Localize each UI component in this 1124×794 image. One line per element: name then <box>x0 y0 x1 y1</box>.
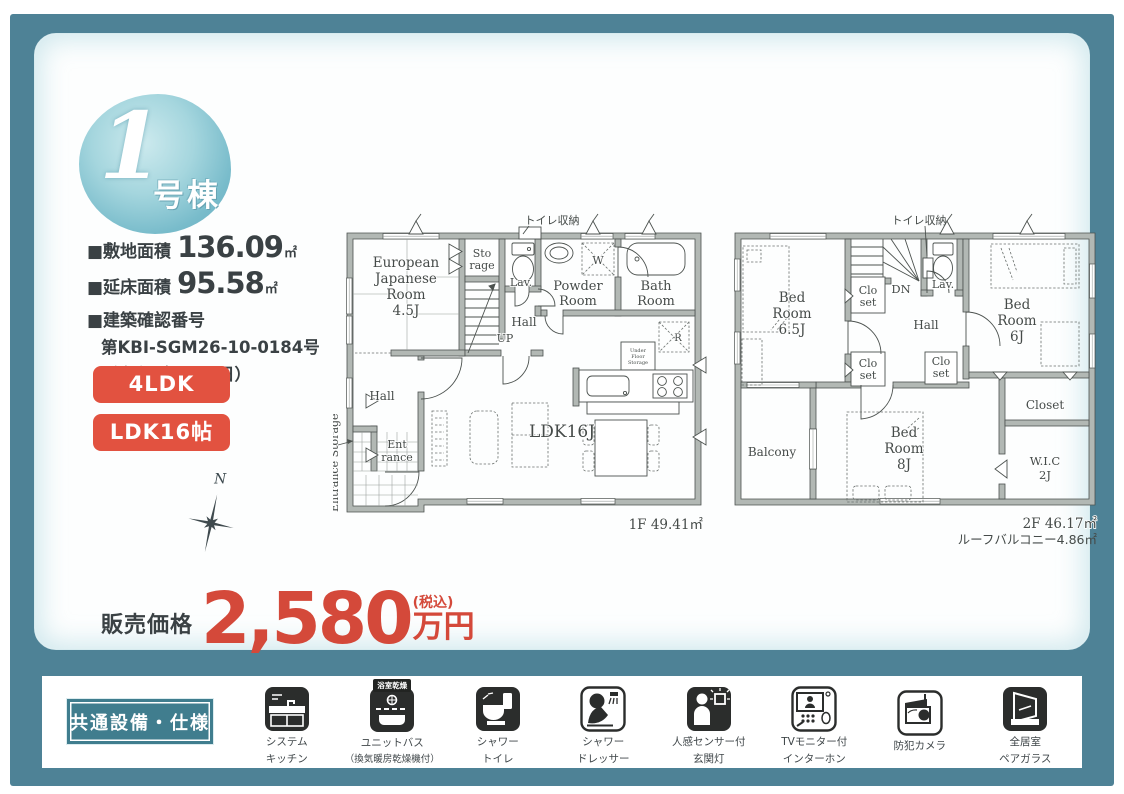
room-label-hall-2f: Hall <box>913 318 938 332</box>
footer-strip: 共通設備・仕様 システム キッチン 浴 <box>42 676 1082 768</box>
feature-unit-bath: 浴室乾燥 ユニットバス （換気暖房乾燥機付） <box>340 684 446 766</box>
room-label-hall-up: Hall <box>511 315 536 329</box>
feature-tv-intercom: TVモニター付 インターホン <box>762 684 868 766</box>
room-label-lav-1f: Lav. <box>510 276 532 289</box>
room-label-hall-1f: Hall <box>369 389 394 403</box>
property-info: ■敷地面積 136.09 ㎡ ■延床面積 95.58 ㎡ ■建築確認番号 第KB… <box>87 230 347 385</box>
entrance-tiles <box>353 432 418 506</box>
svg-text:Room: Room <box>772 306 811 322</box>
price-row: 販売価格 2,580 (税込) 万円 <box>101 586 475 651</box>
compass-rose: N <box>167 466 255 566</box>
building-number-suffix: 号棟 <box>153 170 221 215</box>
site-area-unit: ㎡ <box>284 242 297 261</box>
feature-list: システム キッチン 浴室乾燥 ユニットバス （換気暖房乾燥機付） <box>234 684 1078 766</box>
room-label-closet: Closet <box>1026 398 1065 412</box>
area-label-2f: 2F 46.17㎡ <box>1023 516 1098 532</box>
price-label: 販売価格 <box>101 607 193 651</box>
roof-balcony-label: ルーフバルコニー4.86㎡ <box>958 532 1098 547</box>
toilet-storage-note-1f: トイレ収納 <box>525 214 580 227</box>
feature-pair-glass: 全居室 ペアガラス <box>973 684 1079 766</box>
price-unit-block: (税込) 万円 <box>413 592 475 651</box>
entrance-storage-label: Entrance Storage <box>333 413 341 512</box>
kitchen-counter <box>579 370 693 414</box>
layout-tag: 4LDK <box>93 366 230 403</box>
price-amount: 2,580 <box>201 586 411 651</box>
shower-toilet-icon <box>475 686 521 732</box>
svg-text:Room: Room <box>386 287 425 303</box>
room-label-bed8: Bed <box>891 425 918 441</box>
floorplan-2f: トイレ収納 Bed Room 6.5J Clo set Clo set Clo … <box>723 210 1113 558</box>
svg-text:Room: Room <box>559 294 597 309</box>
svg-text:4.5J: 4.5J <box>393 303 420 319</box>
building-number-badge: 1 号棟 <box>79 94 231 234</box>
svg-text:Room: Room <box>997 313 1036 329</box>
room-label-entrance: Ent <box>387 438 407 451</box>
room-label-wic: W.I.C <box>1030 454 1061 468</box>
svg-text:Storage: Storage <box>628 360 648 366</box>
compass-north-label: N <box>213 472 227 488</box>
floorplan-1f: トイレ収納 European Japanese Room 4.5J Sto ra… <box>333 210 725 558</box>
svg-text:set: set <box>933 367 950 380</box>
compass-icon: N <box>167 466 255 562</box>
svg-text:Room: Room <box>884 441 923 457</box>
floor-area-unit: ㎡ <box>265 278 278 297</box>
stairs-up-label: UP <box>497 332 514 345</box>
pair-glass-icon <box>1002 686 1048 732</box>
room-label-bed6: Bed <box>1004 297 1031 313</box>
unit-bath-icon <box>369 687 415 733</box>
ldk-size-tag: LDK16帖 <box>93 414 230 451</box>
floor-area-label: ■延床面積 <box>87 273 171 298</box>
system-kitchen-icon <box>264 686 310 732</box>
shower-dresser-icon <box>580 686 626 732</box>
toilet-2f <box>933 243 953 280</box>
stairs-down-label: DN <box>891 282 910 296</box>
flyer-page: 1 号棟 ■敷地面積 136.09 ㎡ ■延床面積 95.58 ㎡ ■建築確認番… <box>0 0 1124 794</box>
roof-vent-icons-2f <box>940 214 1034 234</box>
floor-area-value: 95.58 <box>177 266 264 300</box>
svg-text:2J: 2J <box>1039 468 1051 482</box>
svg-text:rage: rage <box>469 259 494 272</box>
room-label-ejr: European <box>373 255 440 271</box>
svg-text:8J: 8J <box>897 457 911 473</box>
toilet-storage-note-2f: トイレ収納 <box>892 214 947 227</box>
svg-text:rance: rance <box>381 451 413 464</box>
svg-text:6J: 6J <box>1010 329 1024 345</box>
refrigerator-label: R <box>674 333 682 344</box>
site-area-row: ■敷地面積 136.09 ㎡ <box>87 230 347 264</box>
washing-machine-label: W <box>592 254 604 267</box>
tv-intercom-icon <box>791 686 837 732</box>
floor-area-row: ■延床面積 95.58 ㎡ <box>87 266 347 300</box>
svg-text:6.5J: 6.5J <box>779 322 806 338</box>
bathtub <box>627 243 685 275</box>
room-label-powder: Powder <box>553 279 603 294</box>
sensor-light-icon <box>686 686 732 732</box>
feature-security-camera: 防犯カメラ <box>867 684 973 766</box>
confirmation-number: 第KBI-SGM26-10-0184号 <box>101 334 347 358</box>
feature-shower-dresser: シャワー ドレッサー <box>551 684 657 766</box>
area-label-1f: 1F 49.41㎡ <box>629 517 704 533</box>
svg-text:set: set <box>860 369 877 382</box>
stairs-up <box>465 284 499 353</box>
room-label-lav-2f: Lav. <box>932 278 954 291</box>
site-area-label: ■敷地面積 <box>87 237 171 262</box>
feature-system-kitchen: システム キッチン <box>234 684 340 766</box>
common-equipment-title: 共通設備・仕様 <box>66 698 214 745</box>
toilet-storage-shelf-1f <box>519 227 541 239</box>
main-card: 1 号棟 ■敷地面積 136.09 ㎡ ■延床面積 95.58 ㎡ ■建築確認番… <box>34 33 1090 650</box>
toilet-storage-shelf-2f <box>923 258 933 278</box>
powder-sink <box>545 243 573 263</box>
price-unit: 万円 <box>413 612 475 643</box>
room-label-ldk: LDK16J <box>529 422 595 442</box>
room-label-bath: Bath <box>641 279 673 294</box>
svg-text:Japanese: Japanese <box>373 271 437 287</box>
bath-dryer-chip: 浴室乾燥 <box>373 679 411 692</box>
site-area-value: 136.09 <box>177 230 283 264</box>
feature-shower-toilet: シャワー トイレ <box>445 684 551 766</box>
svg-text:Room: Room <box>637 294 675 309</box>
svg-text:set: set <box>860 296 877 309</box>
confirmation-label: ■建築確認番号 <box>87 306 347 331</box>
room-label-balcony: Balcony <box>748 445 796 459</box>
stairs-down <box>851 239 919 281</box>
security-camera-icon <box>897 690 943 736</box>
feature-sensor-light: 人感センサー付 玄関灯 <box>656 684 762 766</box>
room-label-bed65: Bed <box>779 290 806 306</box>
